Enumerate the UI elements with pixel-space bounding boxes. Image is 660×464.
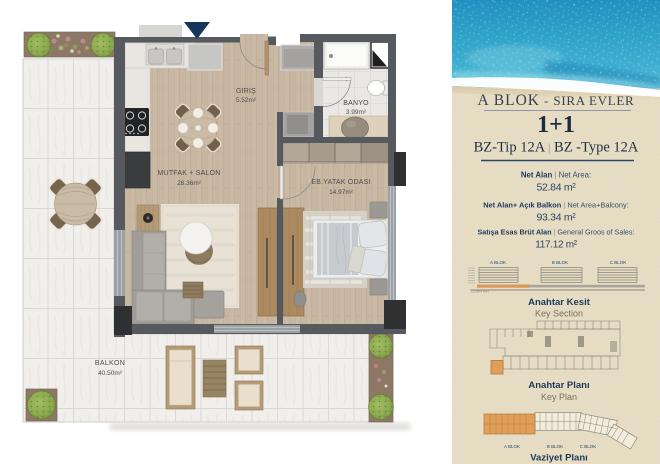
svg-text:A BLOK: A BLOK (504, 444, 520, 449)
svg-text:BANYO: BANYO (343, 100, 369, 107)
svg-text:MUTFAK + SALON: MUTFAK + SALON (158, 170, 221, 177)
svg-text:BALKON: BALKON (95, 360, 125, 367)
svg-text:Net Alan | Net Area:: Net Alan | Net Area: (521, 171, 591, 180)
svg-text:52.84 m²: 52.84 m² (536, 182, 576, 194)
svg-text:14.97m²: 14.97m² (329, 189, 354, 196)
svg-text:28.36m²: 28.36m² (177, 180, 202, 187)
svg-text:B BLOK: B BLOK (552, 260, 568, 265)
svg-text:3.99m²: 3.99m² (346, 109, 367, 116)
svg-text:93.34 m²: 93.34 m² (536, 212, 576, 224)
svg-text:C BLOK: C BLOK (610, 260, 627, 265)
svg-text:A BLOK: A BLOK (490, 260, 506, 265)
svg-text:BZ-Tip 12A | BZ -Type 12A: BZ-Tip 12A | BZ -Type 12A (474, 140, 639, 156)
svg-text:ZEMIN KAT: ZEMIN KAT (471, 290, 490, 294)
svg-text:C BLOK: C BLOK (580, 444, 597, 449)
svg-text:40.50m²: 40.50m² (98, 370, 123, 377)
svg-text:Satışa Esas Brüt Alan | Genera: Satışa Esas Brüt Alan | General Groos of… (477, 228, 634, 237)
svg-text:Anahtar Kesit: Anahtar Kesit (528, 297, 591, 308)
svg-text:1+1: 1+1 (537, 112, 575, 138)
svg-text:Key Section: Key Section (535, 309, 583, 319)
svg-text:Net Alan+ Açık Balkon | Net Ar: Net Alan+ Açık Balkon | Net Area+Balcony… (483, 201, 629, 210)
svg-text:GIRIŞ: GIRIŞ (236, 88, 256, 95)
svg-text:B BLOK: B BLOK (547, 444, 563, 449)
svg-text:A BLOK - SIRA EVLER: A BLOK - SIRA EVLER (478, 92, 635, 109)
svg-text:Vaziyet Planı: Vaziyet Planı (530, 453, 588, 464)
svg-text:Key Plan: Key Plan (541, 392, 577, 402)
svg-text:Anahtar Planı: Anahtar Planı (528, 380, 589, 391)
svg-text:EB.YATAK ODASI: EB.YATAK ODASI (311, 179, 370, 186)
svg-text:117.12 m²: 117.12 m² (535, 240, 578, 251)
svg-text:5.52m²: 5.52m² (236, 97, 257, 104)
